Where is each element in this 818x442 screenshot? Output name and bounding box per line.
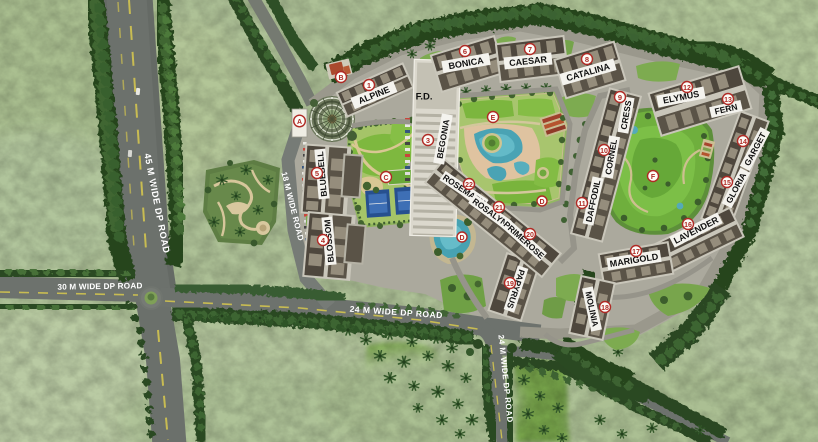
svg-text:11: 11 <box>578 201 586 208</box>
svg-text:12: 12 <box>683 85 691 92</box>
svg-text:F: F <box>651 174 656 181</box>
svg-text:1: 1 <box>367 81 371 90</box>
svg-text:18: 18 <box>601 305 609 312</box>
svg-text:B: B <box>338 75 343 82</box>
svg-text:22: 22 <box>465 182 473 189</box>
svg-text:21: 21 <box>495 205 503 212</box>
svg-text:16: 16 <box>684 222 692 229</box>
svg-text:8: 8 <box>585 55 589 64</box>
svg-text:30 M WIDE DP ROAD: 30 M WIDE DP ROAD <box>57 281 142 291</box>
svg-text:7: 7 <box>528 45 532 54</box>
svg-text:10: 10 <box>600 148 608 155</box>
svg-text:6: 6 <box>463 47 467 56</box>
svg-text:D: D <box>459 235 464 242</box>
svg-text:A: A <box>297 119 302 126</box>
svg-text:9: 9 <box>618 93 622 102</box>
svg-text:C: C <box>383 175 388 182</box>
svg-text:E: E <box>491 115 496 122</box>
svg-text:F.D.: F.D. <box>416 92 433 103</box>
svg-text:14: 14 <box>739 139 747 146</box>
svg-text:5: 5 <box>315 169 319 178</box>
svg-text:20: 20 <box>526 232 534 239</box>
svg-text:3: 3 <box>426 136 430 145</box>
svg-text:D: D <box>539 199 544 206</box>
svg-text:17: 17 <box>632 249 640 256</box>
svg-text:19: 19 <box>506 281 514 288</box>
svg-text:13: 13 <box>724 97 732 104</box>
svg-text:15: 15 <box>723 180 731 187</box>
